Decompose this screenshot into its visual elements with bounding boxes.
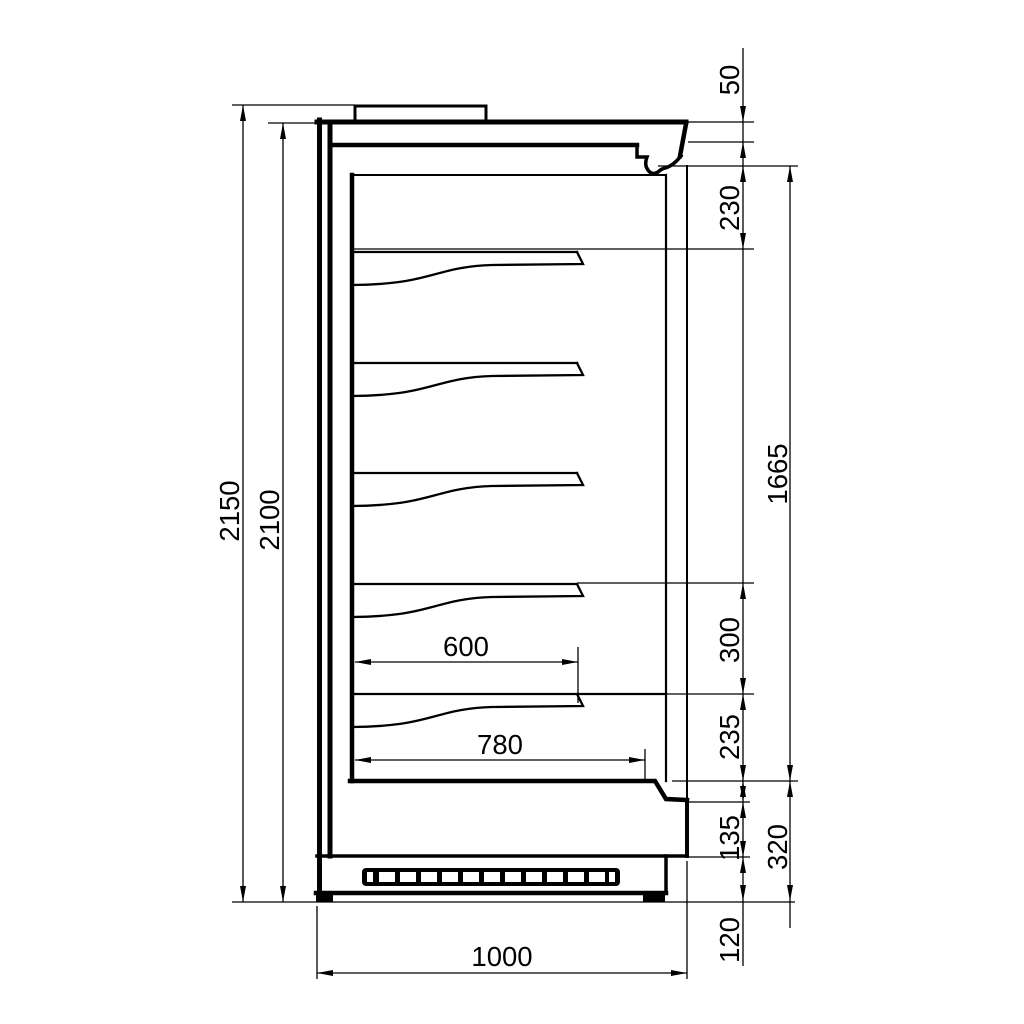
- shelf-3: [352, 473, 583, 506]
- dim-label-interior-height: 1665: [762, 443, 793, 504]
- dim-label-canopy-to-first-shelf: 230: [714, 185, 745, 231]
- shelf-4: [352, 584, 583, 617]
- shelf-2: [352, 363, 583, 396]
- dim-label-overall-depth: 1000: [471, 941, 532, 972]
- dimension-labels: 2150 2100 50 230 1665 300 235 135 320 12…: [214, 65, 793, 972]
- canopy-air-outlet-profile: [637, 145, 681, 174]
- dim-label-base-section: 320: [762, 824, 793, 870]
- dim-label-canopy-front: 50: [714, 65, 745, 96]
- dim-label-body-height: 2100: [254, 489, 285, 550]
- dim-label-shelf-depth: 600: [443, 631, 489, 662]
- shelf-5: [352, 694, 666, 727]
- foot-right: [643, 894, 665, 903]
- dim-label-front-lower-panel: 135: [714, 815, 745, 861]
- cabinet-structure: [316, 106, 687, 902]
- dim-label-overall-height: 2150: [214, 480, 245, 541]
- dim-label-shelf-spacing: 300: [714, 617, 745, 663]
- technical-drawing-canvas: 2150 2100 50 230 1665 300 235 135 320 12…: [0, 0, 1024, 1024]
- dimension-arrows: [240, 105, 793, 976]
- dim-label-deck-depth: 780: [477, 729, 523, 760]
- dim-label-last-shelf-to-deck: 235: [714, 714, 745, 760]
- deck-bottom: [350, 781, 687, 800]
- dim-label-plinth-height: 120: [714, 917, 745, 963]
- canopy-front-edge: [680, 124, 686, 156]
- cabinet-section-drawing: 2150 2100 50 230 1665 300 235 135 320 12…: [0, 0, 1024, 1024]
- shelf-1: [352, 252, 583, 285]
- ventilation-grille: [362, 868, 620, 886]
- foot-left: [316, 894, 333, 903]
